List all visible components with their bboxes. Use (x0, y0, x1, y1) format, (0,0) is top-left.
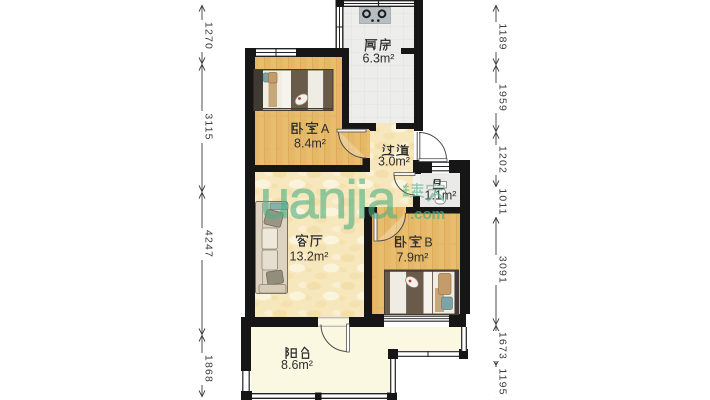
svg-text:1673: 1673 (497, 332, 509, 360)
svg-text:3115: 3115 (203, 113, 215, 140)
svg-text:3.0m²: 3.0m² (378, 155, 410, 169)
svg-text:B: B (424, 236, 432, 250)
svg-text:1270: 1270 (203, 22, 215, 50)
svg-text:6.3m²: 6.3m² (363, 52, 395, 66)
svg-text:1011: 1011 (497, 188, 509, 215)
svg-text:1195: 1195 (497, 368, 509, 395)
svg-text:1868: 1868 (203, 355, 215, 383)
svg-text:8.4m²: 8.4m² (294, 137, 326, 151)
svg-text:8.6m²: 8.6m² (281, 358, 313, 372)
svg-text:7.9m²: 7.9m² (397, 251, 429, 265)
svg-text:4247: 4247 (203, 230, 215, 258)
svg-text:1189: 1189 (497, 23, 509, 50)
svg-text:1959: 1959 (497, 84, 509, 112)
svg-text:uanjia: uanjia (260, 170, 398, 230)
svg-text:13.2m²: 13.2m² (290, 250, 329, 264)
svg-text:.com: .com (410, 206, 445, 223)
svg-text:1202: 1202 (497, 146, 509, 174)
svg-text:A: A (321, 122, 330, 136)
svg-text:3091: 3091 (497, 256, 509, 284)
